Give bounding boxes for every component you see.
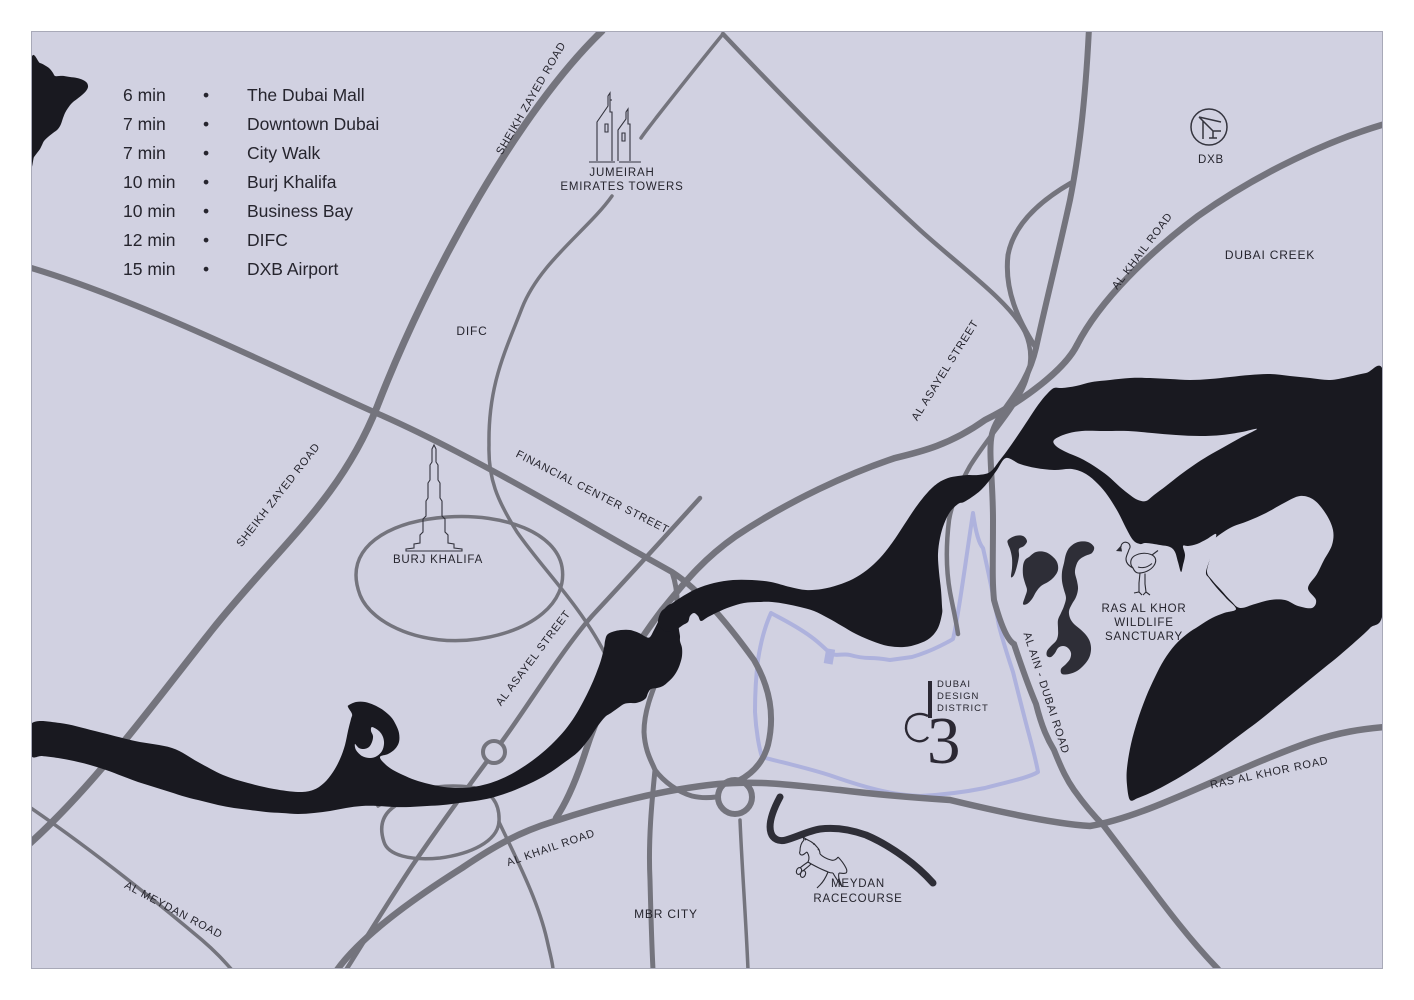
svg-text:EMIRATES TOWERS: EMIRATES TOWERS	[560, 181, 683, 193]
svg-text:Burj Khalifa: Burj Khalifa	[247, 172, 337, 192]
svg-text:10 min: 10 min	[123, 172, 176, 192]
svg-text:15 min: 15 min	[123, 259, 176, 279]
svg-text:The Dubai Mall: The Dubai Mall	[247, 85, 365, 105]
svg-text:•: •	[203, 259, 209, 279]
svg-text:•: •	[203, 114, 209, 134]
svg-text:•: •	[203, 85, 209, 105]
svg-text:6 min: 6 min	[123, 85, 166, 105]
svg-text:DXB: DXB	[1198, 154, 1224, 166]
svg-text:DIFC: DIFC	[456, 324, 487, 338]
svg-text:3: 3	[927, 704, 961, 778]
svg-text:SANCTUARY: SANCTUARY	[1105, 631, 1183, 643]
svg-text:•: •	[203, 172, 209, 192]
svg-text:BURJ KHALIFA: BURJ KHALIFA	[393, 554, 483, 566]
svg-text:MEYDAN: MEYDAN	[831, 878, 885, 890]
svg-text:•: •	[203, 230, 209, 250]
svg-text:DXB Airport: DXB Airport	[247, 259, 339, 279]
svg-text:JUMEIRAH: JUMEIRAH	[589, 167, 654, 179]
svg-text:MBR CITY: MBR CITY	[634, 907, 698, 921]
svg-text:RACECOURSE: RACECOURSE	[813, 893, 902, 905]
svg-text:7 min: 7 min	[123, 143, 166, 163]
svg-text:DIFC: DIFC	[247, 230, 288, 250]
svg-text:DESIGN: DESIGN	[937, 691, 979, 702]
svg-text:DISTRICT: DISTRICT	[937, 703, 989, 714]
svg-text:Business Bay: Business Bay	[247, 201, 353, 221]
svg-text:DUBAI: DUBAI	[937, 679, 971, 690]
svg-text:•: •	[203, 201, 209, 221]
svg-text:City Walk: City Walk	[247, 143, 320, 163]
svg-text:Downtown Dubai: Downtown Dubai	[247, 114, 379, 134]
svg-text:WILDLIFE: WILDLIFE	[1114, 617, 1173, 629]
svg-text:12 min: 12 min	[123, 230, 176, 250]
svg-text:10 min: 10 min	[123, 201, 176, 221]
svg-text:RAS AL KHOR: RAS AL KHOR	[1101, 603, 1186, 615]
svg-text:•: •	[203, 143, 209, 163]
svg-text:DUBAI CREEK: DUBAI CREEK	[1225, 248, 1315, 262]
svg-text:7 min: 7 min	[123, 114, 166, 134]
